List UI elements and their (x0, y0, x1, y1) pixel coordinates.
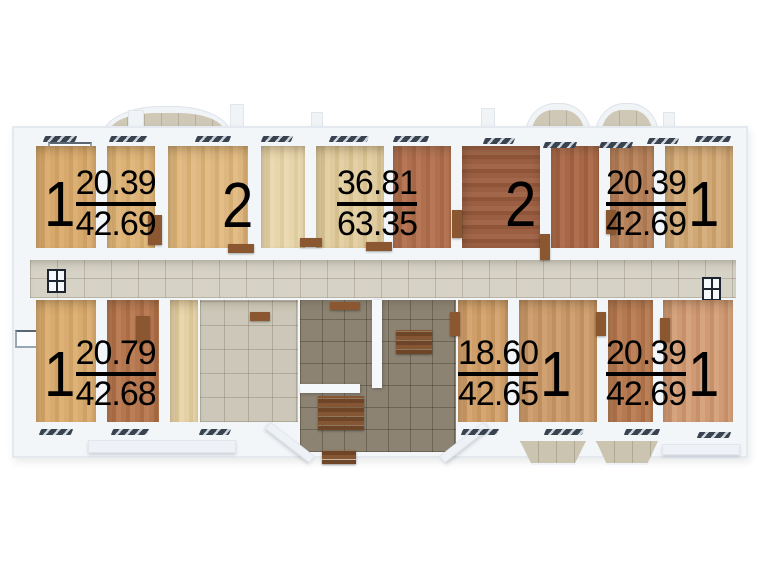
room-floor (170, 300, 198, 422)
unit-label-top-right-2[interactable]: 2 (503, 172, 537, 236)
room-floor (551, 146, 599, 248)
window-glazing-icon (647, 138, 679, 144)
balcony (596, 441, 658, 465)
door-icon (330, 302, 360, 310)
window-glazing-icon (43, 136, 77, 142)
unit-area-fraction: 20.3942.69 (606, 336, 686, 411)
door-icon (596, 312, 606, 336)
window-glazing-icon (483, 138, 515, 144)
area-total: 63.35 (337, 207, 417, 242)
area-living: 20.79 (76, 336, 156, 371)
door-icon (366, 242, 392, 251)
door-icon (540, 234, 550, 260)
unit-rooms-count: 1 (44, 342, 74, 406)
window-glazing-icon (544, 429, 584, 435)
window-glazing-icon (543, 142, 577, 148)
window-glazing-icon (695, 136, 731, 142)
window-glazing-icon (261, 136, 293, 142)
window-glazing-icon (461, 429, 499, 435)
unit-rooms-count: 2 (222, 173, 252, 237)
window-glazing-icon (39, 429, 73, 435)
unit-area-fraction: 20.3942.69 (76, 166, 156, 241)
unit-label-top-left[interactable]: 120.3942.69 (42, 166, 156, 241)
unit-rooms-count: 1 (44, 172, 74, 236)
room-floor (261, 146, 305, 248)
unit-area-fraction: 18.6042.65 (458, 336, 538, 411)
area-living: 18.60 (458, 336, 538, 371)
window-glazing-icon (624, 429, 660, 435)
stair-partition-wall (300, 384, 360, 393)
unit-rooms-count: 1 (688, 172, 718, 236)
door-icon (228, 244, 254, 253)
balcony (520, 441, 586, 465)
unit-rooms-count: 1 (540, 342, 570, 406)
lobby-floor (200, 300, 298, 422)
area-living: 36.81 (337, 166, 417, 201)
unit-rooms-count: 1 (688, 342, 718, 406)
window-glazing-icon (111, 429, 149, 435)
unit-area-fraction: 20.7942.68 (76, 336, 156, 411)
door-icon (450, 312, 460, 336)
unit-rooms-count: 2 (505, 172, 535, 236)
entrance-steps (322, 450, 356, 464)
area-total: 42.69 (606, 207, 686, 242)
window-glazing-icon (599, 142, 633, 148)
balcony-ledge (88, 440, 236, 453)
unit-label-bottom-right[interactable]: 20.3942.691 (606, 336, 720, 411)
window-glazing-icon (199, 429, 231, 435)
unit-label-top-right[interactable]: 20.3942.691 (606, 166, 720, 241)
area-living: 20.39 (606, 336, 686, 371)
window-grid-icon (702, 277, 721, 301)
corridor-floor (30, 260, 736, 298)
window-glazing-icon (109, 136, 147, 142)
door-icon (250, 312, 270, 321)
window-glazing-icon (195, 136, 231, 142)
area-total: 42.69 (76, 207, 156, 242)
door-icon (452, 210, 462, 238)
area-total: 42.68 (76, 377, 156, 412)
unit-label-bottom-center[interactable]: 18.6042.651 (458, 336, 572, 411)
window-glazing-icon (697, 432, 731, 438)
door-icon (300, 238, 322, 247)
floor-plan: 120.3942.69 2 36.8163.35 2 20.3942.691 1… (0, 0, 760, 570)
staircase-steps (318, 396, 364, 430)
area-living: 20.39 (606, 166, 686, 201)
area-living: 20.39 (76, 166, 156, 201)
window-glazing-icon (393, 136, 429, 142)
balcony-ledge (662, 444, 740, 455)
unit-label-bottom-left[interactable]: 120.7942.68 (42, 336, 156, 411)
window-grid-icon (47, 269, 66, 293)
unit-area-fraction: 36.8163.35 (337, 166, 417, 241)
stair-partition-wall (372, 300, 382, 388)
unit-area-fraction: 20.3942.69 (606, 166, 686, 241)
staircase-steps (396, 330, 432, 354)
area-total: 42.65 (458, 377, 538, 412)
window-glazing-icon (329, 136, 369, 142)
area-total: 42.69 (606, 377, 686, 412)
unit-label-top-center[interactable]: 36.8163.35 (337, 166, 417, 241)
unit-label-top-left-2[interactable]: 2 (220, 173, 254, 237)
